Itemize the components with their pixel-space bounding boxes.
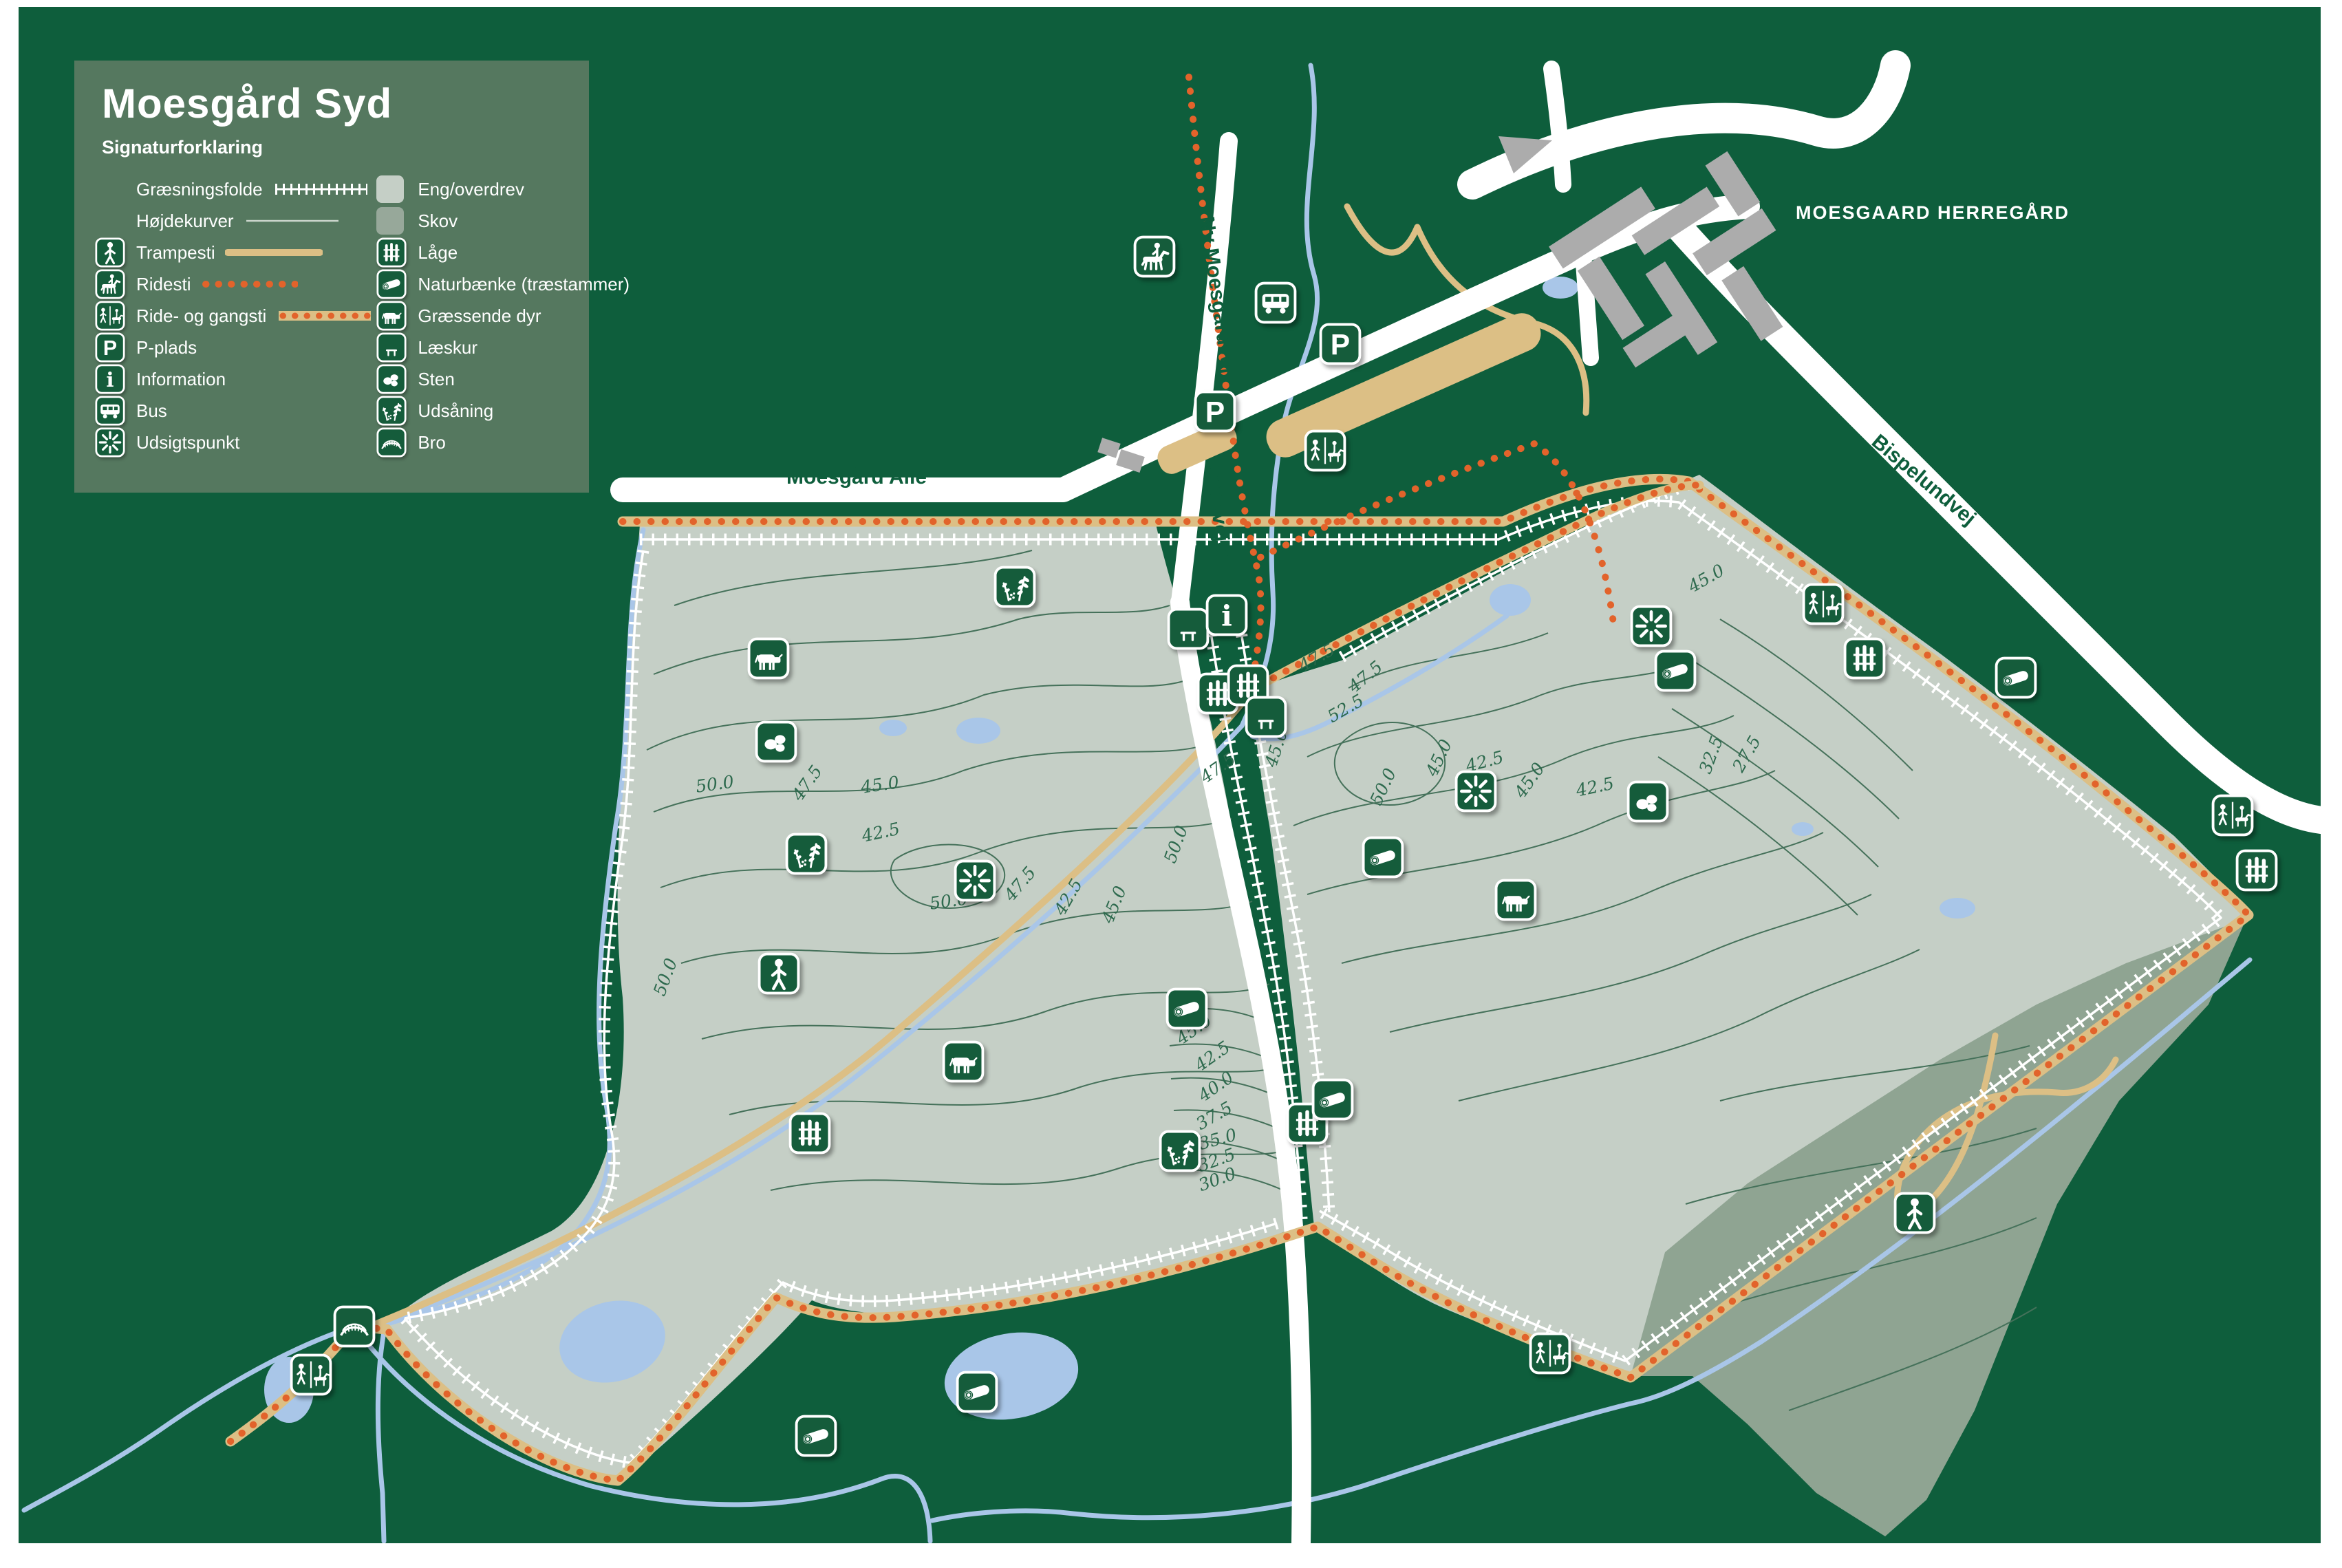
gate-icon [791, 1114, 830, 1153]
log-icon [958, 1373, 997, 1412]
legend-item: Trampesti [95, 237, 374, 268]
legend-item: Ride- og gangsti [95, 300, 374, 332]
rider-icon [95, 269, 125, 299]
gate-icon [1845, 639, 1884, 678]
parking-icon [1321, 325, 1360, 364]
legend-item: Læskur [376, 332, 630, 363]
legend-item: Udsigtspunkt [95, 427, 374, 458]
cow-icon [1496, 881, 1536, 920]
info-icon [1207, 596, 1247, 635]
bus-icon [1256, 283, 1296, 323]
map-poster: P i [0, 0, 2342, 1568]
legend-label: Udsåning [418, 400, 493, 422]
ridegang-icon [1531, 1334, 1570, 1373]
rider-icon [1135, 237, 1174, 277]
parking-icon [95, 332, 125, 363]
legend-label: Information [136, 369, 226, 390]
legend-label: Eng/overdrev [418, 179, 524, 200]
legend-item: Bus [95, 395, 374, 427]
legend-item: Udsåning [376, 395, 630, 427]
legend-label: Ridesti [136, 274, 191, 295]
walker-icon [1895, 1194, 1935, 1233]
legend-item: Naturbænke (træstammer) [376, 268, 630, 300]
ridegang-icon [1306, 431, 1345, 471]
ridesti-sample [200, 275, 298, 293]
road-label: Moesgård Allé [786, 466, 927, 488]
legend-swatch [376, 175, 404, 203]
viewpoint-icon [1632, 607, 1671, 646]
shelter-icon [1169, 610, 1208, 649]
legend-item: P-plads [95, 332, 374, 363]
ridegang-icon [95, 301, 125, 331]
shelter-icon [1247, 698, 1286, 737]
legend-item: Information [95, 363, 374, 395]
legend-item: Skov [376, 205, 630, 237]
bridge-icon [335, 1307, 374, 1346]
legend-column-left: GræsningsfoldeHøjdekurverTrampestiRidest… [95, 173, 374, 458]
log-icon [1997, 658, 2036, 698]
legend-label: Låge [418, 242, 458, 264]
legend-item: Græsningsfolde [95, 173, 374, 205]
log-icon [1364, 838, 1403, 877]
legend-label: Græssende dyr [418, 305, 541, 327]
legend-item: Bro [376, 427, 630, 458]
legend-item: Sten [376, 363, 630, 395]
fence-sample [272, 180, 370, 198]
sowing-icon [996, 568, 1035, 607]
legend-column-right: Eng/overdrevSkovLågeNaturbænke (træstamm… [376, 173, 630, 458]
ridegang-icon [1804, 585, 1843, 624]
cow-icon [944, 1042, 983, 1082]
legend-item: Højdekurver [95, 205, 374, 237]
legend-swatch [376, 207, 404, 235]
road-parking-stub [1582, 244, 1591, 358]
contour-sample [244, 212, 341, 230]
gate-icon [2237, 851, 2277, 890]
legend-label: P-plads [136, 337, 197, 358]
legend-panel: Moesgård Syd Signaturforklaring Græsning… [74, 61, 589, 493]
stones-icon [376, 364, 407, 394]
viewpoint-icon [1457, 772, 1496, 811]
legend-item: Ridesti [95, 268, 374, 300]
legend-label: Græsningsfolde [136, 179, 263, 200]
sowing-icon [1161, 1132, 1200, 1171]
trampesti-sample [225, 244, 323, 261]
ridegang-icon [2213, 796, 2253, 835]
legend-label: Trampesti [136, 242, 215, 264]
shelter-icon [376, 332, 407, 363]
log-icon [1656, 652, 1695, 691]
sowing-icon [376, 396, 407, 426]
legend-subtitle: Signaturforklaring [102, 137, 568, 158]
log-icon [376, 269, 407, 299]
walker-icon [760, 954, 799, 994]
viewpoint-icon [956, 861, 995, 901]
walker-icon [95, 237, 125, 268]
estate-label: MOESGAARD HERREGÅRD [1796, 202, 2070, 223]
legend-label: Bro [418, 432, 445, 453]
legend-label: Ride- og gangsti [136, 305, 266, 327]
legend-item: Låge [376, 237, 630, 268]
ridegang-icon [292, 1355, 331, 1395]
log-icon [1168, 989, 1207, 1029]
legend-label: Læskur [418, 337, 477, 358]
viewpoint-icon [95, 427, 125, 458]
legend-item: Eng/overdrev [376, 173, 630, 205]
legend-label: Højdekurver [136, 211, 234, 232]
legend-label: Sten [418, 369, 455, 390]
ridegang-sample [276, 307, 374, 325]
log-icon [797, 1417, 836, 1456]
gate-icon [376, 237, 407, 268]
bridge-icon [376, 427, 407, 458]
legend-label: Skov [418, 211, 458, 232]
legend-title: Moesgård Syd [102, 80, 568, 127]
sowing-icon [787, 835, 826, 874]
stones-icon [1629, 782, 1668, 821]
info-icon [95, 364, 125, 394]
bus-icon [95, 396, 125, 426]
cow-icon [376, 301, 407, 331]
cow-icon [749, 639, 788, 678]
parking-icon [1196, 392, 1235, 431]
legend-label: Bus [136, 400, 167, 422]
legend-label: Udsigtspunkt [136, 432, 239, 453]
log-icon [1313, 1080, 1353, 1119]
stones-icon [757, 722, 796, 762]
legend-label: Naturbænke (træstammer) [418, 274, 630, 295]
legend-item: Græssende dyr [376, 300, 630, 332]
